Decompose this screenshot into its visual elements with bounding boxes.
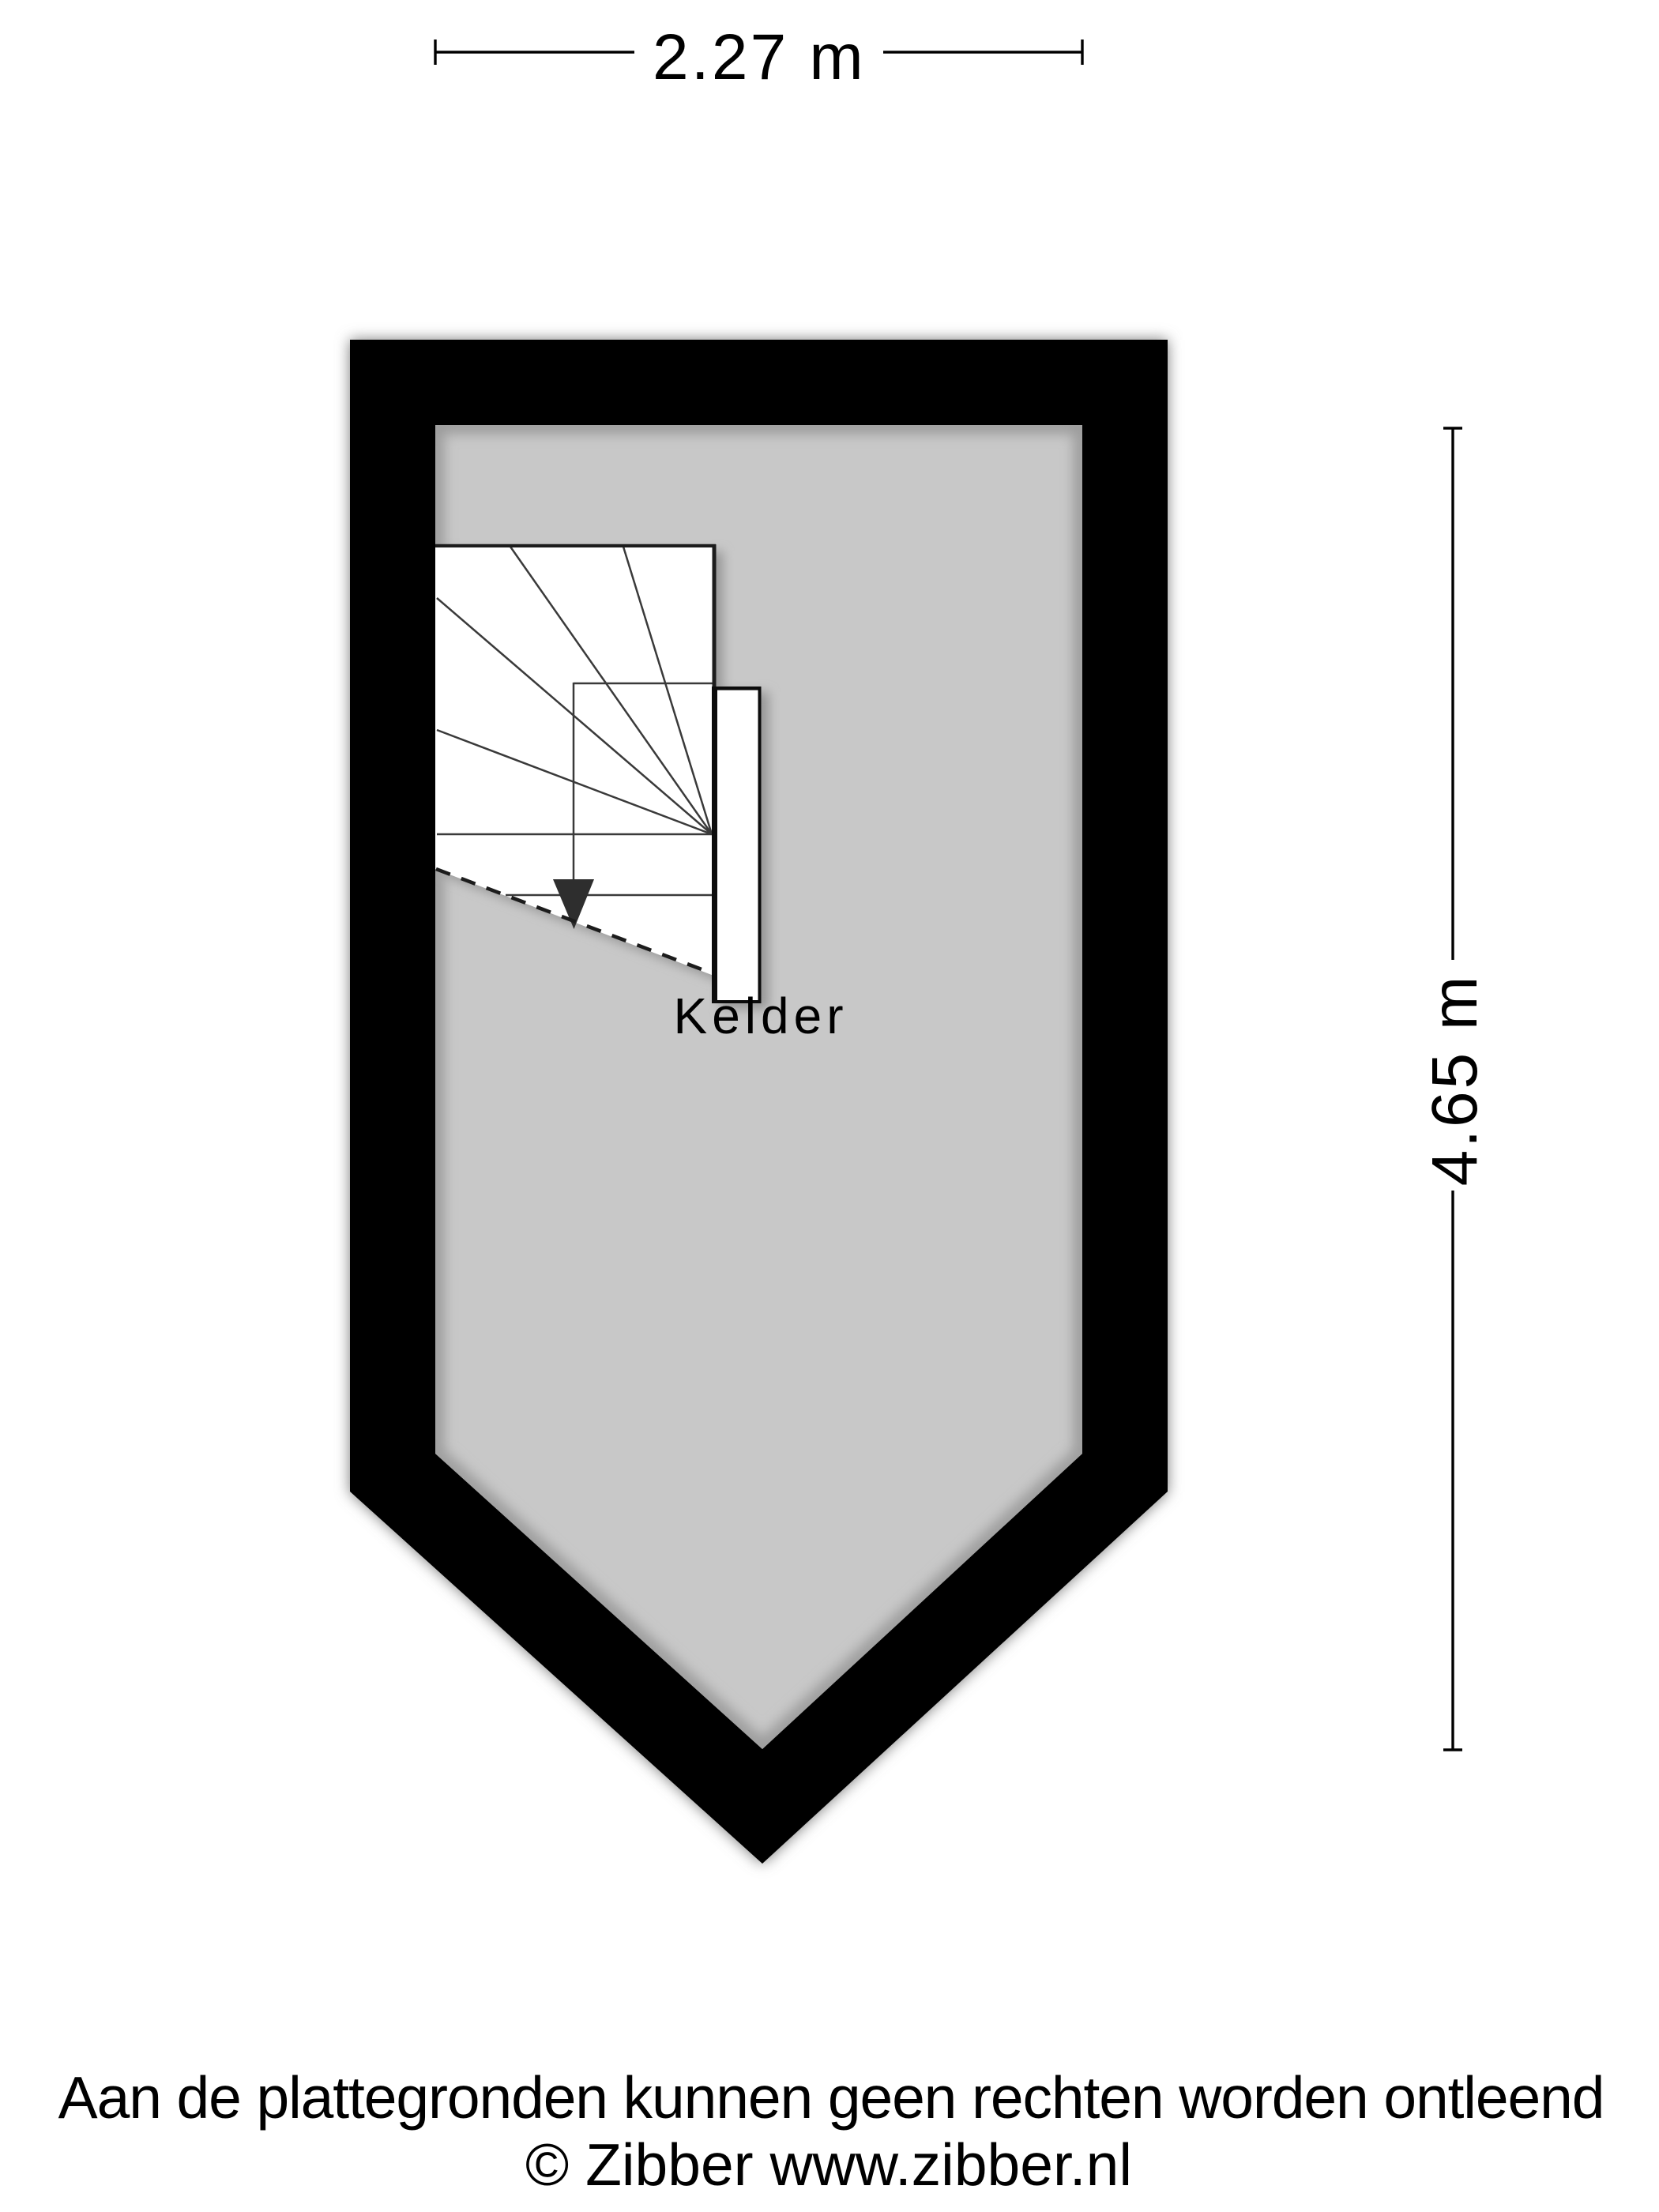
- svg-text:4.65 m: 4.65 m: [1419, 974, 1491, 1187]
- svg-text:Aan de plattegronden kunnen ge: Aan de plattegronden kunnen geen rechten…: [58, 2064, 1604, 2131]
- svg-text:2.27 m: 2.27 m: [653, 21, 866, 93]
- svg-text:Kelder: Kelder: [674, 987, 848, 1044]
- svg-text:© Zibber www.zibber.nl: © Zibber www.zibber.nl: [525, 2131, 1132, 2198]
